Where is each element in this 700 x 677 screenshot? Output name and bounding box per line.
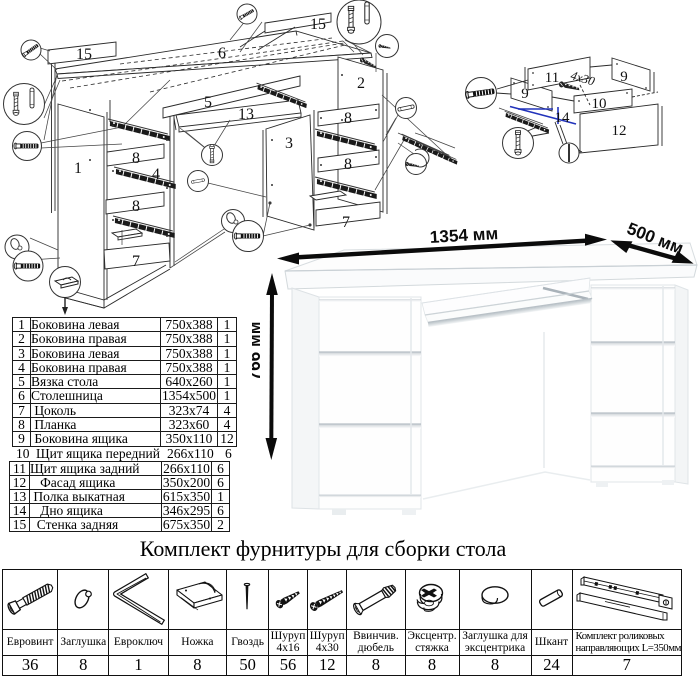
svg-text:4х30: 4х30 [569, 68, 597, 88]
svg-text:1: 1 [74, 160, 82, 177]
svg-text:10: 10 [592, 96, 607, 112]
svg-text:14: 14 [555, 110, 571, 126]
svg-text:766 мм: 766 мм [252, 322, 264, 381]
svg-text:11: 11 [545, 70, 559, 86]
svg-text:9: 9 [521, 86, 529, 102]
svg-text:8: 8 [344, 156, 352, 173]
svg-text:4: 4 [152, 166, 160, 183]
svg-text:9: 9 [620, 69, 628, 85]
svg-text:5: 5 [204, 94, 212, 111]
svg-text:8: 8 [344, 110, 352, 127]
svg-text:3: 3 [285, 135, 293, 152]
svg-text:6: 6 [218, 45, 226, 62]
svg-text:13: 13 [238, 106, 254, 123]
svg-text:8: 8 [132, 150, 140, 167]
svg-text:1354 мм: 1354 мм [429, 223, 498, 247]
svg-text:7: 7 [132, 253, 140, 270]
svg-text:15: 15 [310, 16, 326, 33]
svg-text:12: 12 [612, 123, 627, 139]
svg-text:15: 15 [76, 46, 92, 63]
svg-text:8: 8 [132, 198, 140, 215]
svg-text:2: 2 [357, 75, 365, 92]
